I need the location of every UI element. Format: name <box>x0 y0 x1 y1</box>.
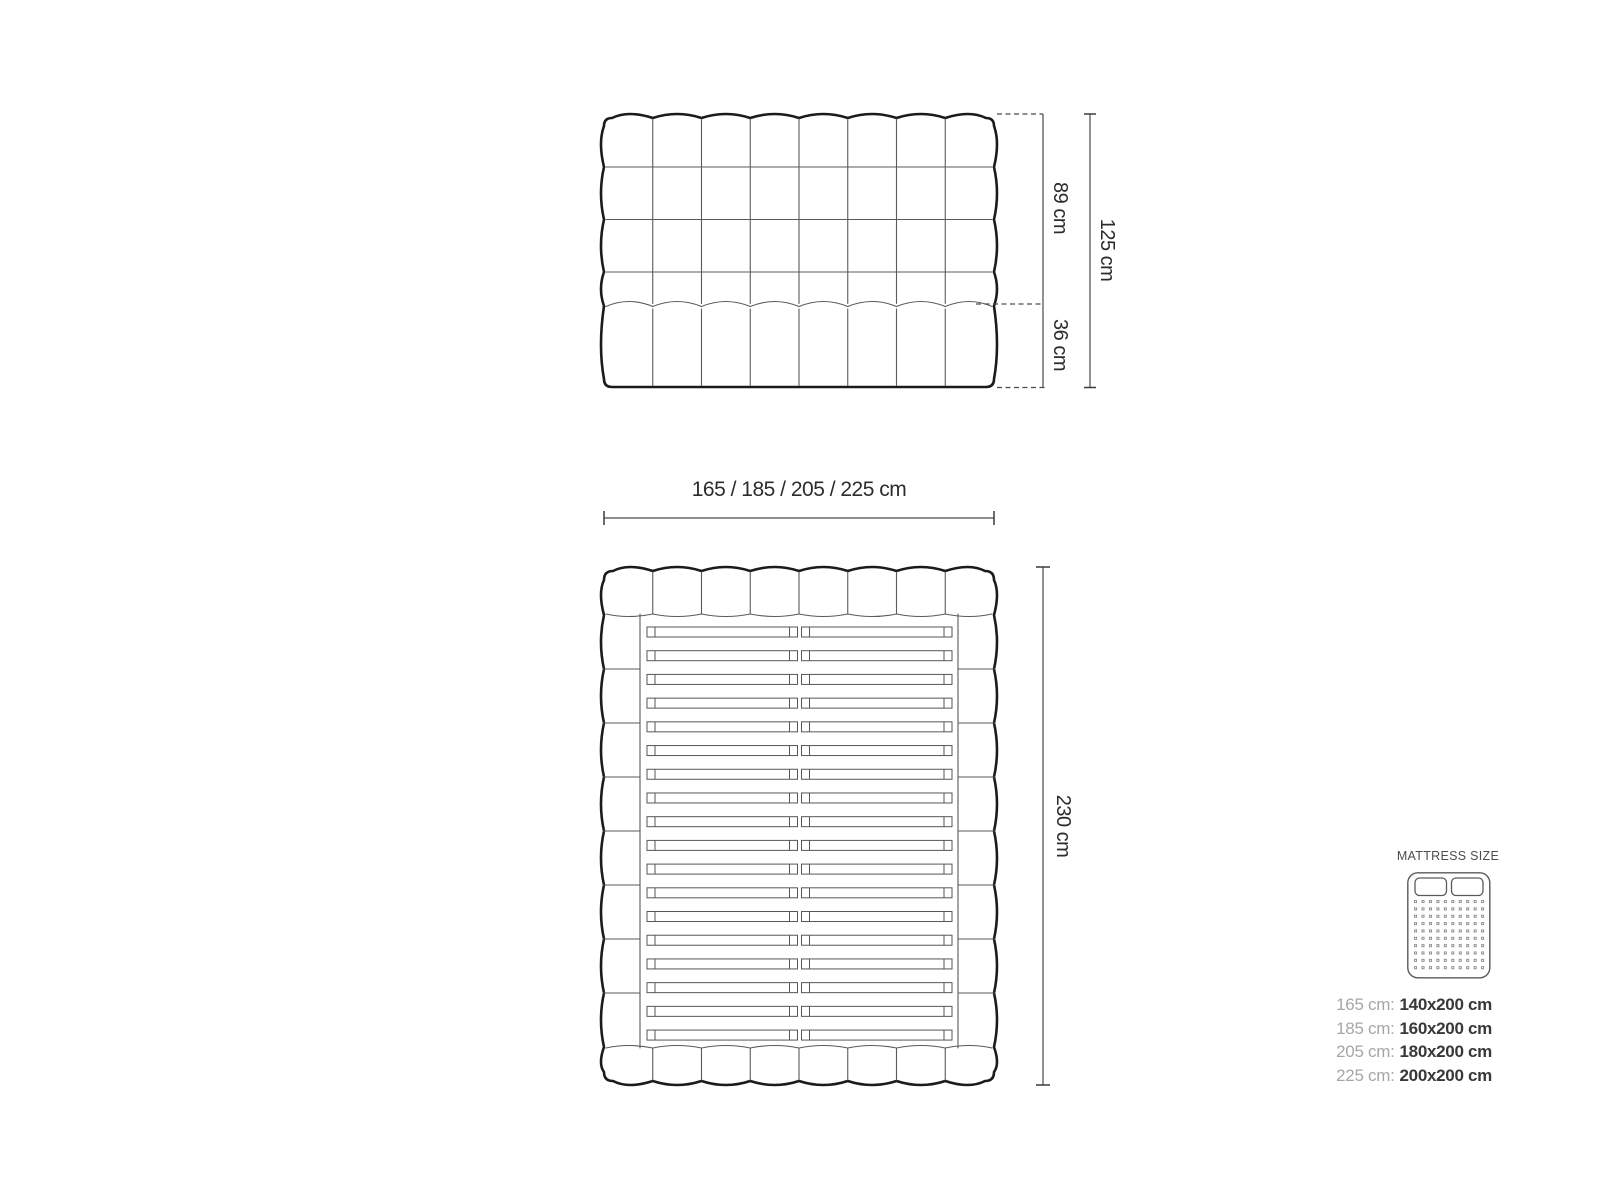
mattress-size-list: 165 cm: 140x200 cm 185 cm: 160x200 cm 20… <box>1330 995 1492 1090</box>
dim-label-headboard-lower: 36 cm <box>1049 319 1071 371</box>
dim-label-headboard-upper: 89 cm <box>1049 182 1071 234</box>
mattress-size-row: 185 cm: 160x200 cm <box>1330 1019 1492 1043</box>
bed-top-view <box>601 567 997 1085</box>
size-option-value: 160x200 cm <box>1400 1019 1492 1039</box>
mattress-size-row: 205 cm: 180x200 cm <box>1330 1042 1492 1066</box>
bed-dimension-diagram-page: 89 cm 36 cm 125 cm 165 / 185 / 205 / 225… <box>0 0 1600 1200</box>
mattress-size-row: 165 cm: 140x200 cm <box>1330 995 1492 1019</box>
size-option-value: 200x200 cm <box>1400 1066 1492 1086</box>
mattress-icon <box>1407 872 1491 979</box>
size-option-label: 185 cm: <box>1336 1019 1394 1039</box>
pillow-right-icon <box>1452 878 1484 896</box>
dim-label-length-total: 230 cm <box>1052 795 1074 858</box>
headboard-front-view <box>601 114 997 387</box>
size-option-value: 140x200 cm <box>1400 995 1492 1015</box>
size-option-label: 205 cm: <box>1336 1042 1394 1062</box>
pillow-left-icon <box>1415 878 1447 896</box>
size-option-value: 180x200 cm <box>1400 1042 1492 1062</box>
dim-label-headboard-total: 125 cm <box>1096 219 1118 282</box>
size-option-label: 225 cm: <box>1336 1066 1394 1086</box>
dim-label-width-options: 165 / 185 / 205 / 225 cm <box>692 478 907 501</box>
size-option-label: 165 cm: <box>1336 995 1394 1015</box>
bed-dimension-lines <box>1036 567 1050 1085</box>
legend-title: MATTRESS SIZE <box>1396 849 1500 863</box>
mattress-size-row: 225 cm: 200x200 cm <box>1330 1066 1492 1090</box>
